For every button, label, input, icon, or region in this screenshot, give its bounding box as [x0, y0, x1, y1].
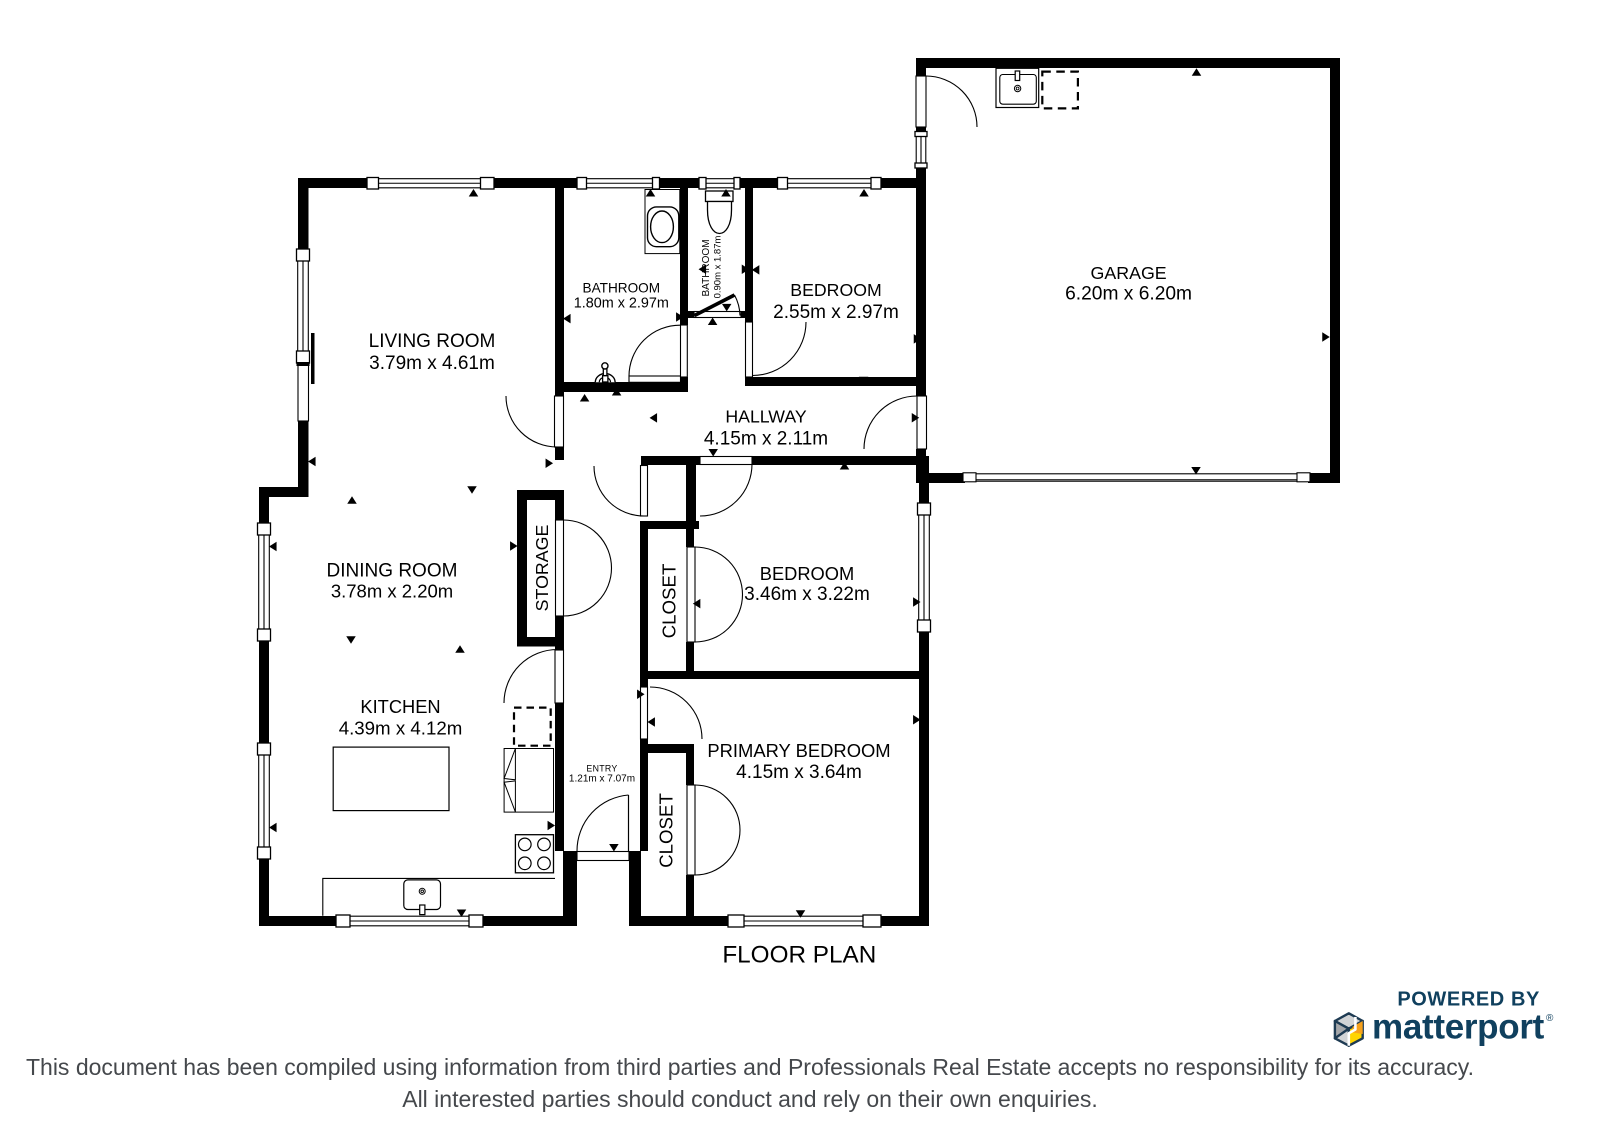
- svg-text:matterport: matterport: [1372, 1008, 1545, 1047]
- svg-text:0.90m x 1.87m: 0.90m x 1.87m: [713, 236, 724, 299]
- svg-text:PRIMARY BEDROOM: PRIMARY BEDROOM: [707, 740, 890, 761]
- svg-text:BATHROOM: BATHROOM: [583, 281, 661, 296]
- svg-text:1.21m x 7.07m: 1.21m x 7.07m: [569, 774, 635, 785]
- svg-text:2.55m x 2.97m: 2.55m x 2.97m: [773, 302, 899, 323]
- svg-text:HALLWAY: HALLWAY: [725, 407, 806, 427]
- svg-text:3.79m x 4.61m: 3.79m x 4.61m: [369, 353, 495, 374]
- svg-text:CLOSET: CLOSET: [659, 564, 680, 639]
- svg-text:4.15m x 3.64m: 4.15m x 3.64m: [736, 762, 862, 783]
- svg-text:GARAGE: GARAGE: [1091, 263, 1167, 283]
- svg-text:CLOSET: CLOSET: [655, 793, 676, 868]
- svg-text:LIVING ROOM: LIVING ROOM: [369, 331, 496, 352]
- svg-text:FLOOR PLAN: FLOOR PLAN: [722, 941, 876, 968]
- svg-text:BEDROOM: BEDROOM: [760, 563, 854, 584]
- svg-text:ENTRY: ENTRY: [586, 764, 617, 774]
- svg-text:BEDROOM: BEDROOM: [790, 280, 881, 300]
- svg-text:®: ®: [1546, 1013, 1554, 1024]
- svg-text:All interested parties should: All interested parties should conduct an…: [402, 1086, 1098, 1112]
- svg-text:DINING ROOM: DINING ROOM: [327, 561, 458, 582]
- svg-text:STORAGE: STORAGE: [532, 525, 552, 612]
- svg-text:6.20m x 6.20m: 6.20m x 6.20m: [1065, 284, 1192, 305]
- svg-text:3.46m x 3.22m: 3.46m x 3.22m: [744, 584, 870, 605]
- svg-text:4.39m x 4.12m: 4.39m x 4.12m: [339, 717, 463, 738]
- svg-text:4.15m x 2.11m: 4.15m x 2.11m: [704, 429, 828, 450]
- svg-text:1.80m x 2.97m: 1.80m x 2.97m: [574, 296, 669, 312]
- svg-text:KITCHEN: KITCHEN: [360, 696, 440, 717]
- svg-text:3.78m x 2.20m: 3.78m x 2.20m: [331, 581, 453, 602]
- svg-text:This document has been compile: This document has been compiled using in…: [26, 1054, 1474, 1080]
- svg-text:BATHROOM: BATHROOM: [701, 239, 712, 296]
